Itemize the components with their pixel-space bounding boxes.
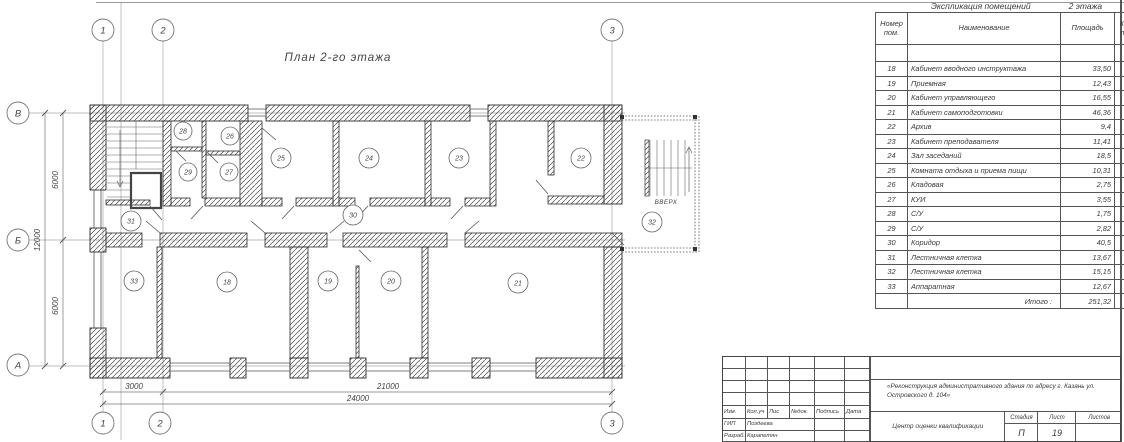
svg-text:29: 29	[183, 170, 192, 177]
room-number: 33	[876, 279, 908, 294]
dim-left-12000: 12000	[33, 228, 42, 251]
room-name: КУИ	[908, 192, 1061, 207]
room-number: 31	[876, 250, 908, 265]
room-cat	[1115, 236, 1124, 251]
table-header-row: Номер пом. Наименование Площадь Кат. пом…	[876, 13, 1124, 45]
room-cat	[1115, 250, 1124, 265]
room-area: 15,15	[1061, 265, 1115, 280]
svg-text:1: 1	[100, 26, 105, 37]
room-number: 29	[876, 221, 908, 236]
table-title-text: Экспликация помещений	[931, 1, 1031, 11]
table-row: 26 Кладовая 2,75	[876, 178, 1124, 193]
explication-table: Экспликация помещений 2 этажа Номер пом.…	[875, 0, 1121, 309]
svg-text:18: 18	[223, 280, 231, 287]
room-number: 24	[876, 149, 908, 164]
tb-empty-strip	[871, 357, 1122, 380]
tb-col-lis: Лис	[768, 406, 790, 419]
room-area: 2,75	[1061, 178, 1115, 193]
room-area: 12,67	[1061, 279, 1115, 294]
table-row: 19 Приемная 12,43	[876, 76, 1124, 91]
total-value: 251,32	[1061, 294, 1115, 309]
title-block-grid: Изм. Кол.уч Лис №док. Подпись Дата ГИП П…	[723, 357, 870, 441]
svg-text:2: 2	[156, 419, 163, 430]
room-area: 10,31	[1061, 163, 1115, 178]
tb-col-izm: Изм.	[723, 406, 746, 419]
table-row: 25 Комната отдыха и приема пищи 10,31	[876, 163, 1124, 178]
table-row: 23 Кабинет преподавателя 11,41	[876, 134, 1124, 149]
room-cat	[1115, 279, 1124, 294]
svg-text:33: 33	[130, 279, 138, 286]
tb-name-razrab: Карапетян	[746, 431, 815, 442]
room-cat	[1115, 76, 1124, 91]
room-area: 16,55	[1061, 91, 1115, 106]
room-number: 30	[876, 236, 908, 251]
room-area: 2,82	[1061, 221, 1115, 236]
room-cat	[1115, 265, 1124, 280]
drawing-sheet: 6000 6000 12000 3000 21000 24000 План 2-…	[0, 0, 1124, 442]
room-cat	[1115, 62, 1124, 77]
sheet-value: 19	[1038, 424, 1076, 441]
tb-gip-sign	[815, 419, 845, 431]
stair-up-arrow	[686, 147, 692, 192]
tb-razrab-date	[845, 431, 870, 442]
room-name: Кабинет преподавателя	[908, 134, 1061, 149]
room-area: 12,43	[1061, 76, 1115, 91]
stair-direction-label: ВВЕРХ	[655, 199, 678, 206]
staircase-right: ВВЕРХ	[620, 115, 699, 252]
floor-plan: 6000 6000 12000 3000 21000 24000 План 2-…	[0, 0, 760, 442]
dim-left-6000-bottom: 6000	[51, 297, 60, 315]
room-name: Лестничная клетка	[908, 250, 1061, 265]
col-header-number: Номер пом.	[876, 13, 908, 45]
tb-col-data: Дата	[845, 406, 870, 419]
room-area: 40,5	[1061, 236, 1115, 251]
svg-text:20: 20	[386, 279, 395, 286]
svg-text:2: 2	[159, 26, 166, 37]
svg-text:32: 32	[648, 220, 656, 227]
sheets-label: Листов	[1076, 412, 1122, 423]
room-number: 23	[876, 134, 908, 149]
room-name: Лестничная клетка	[908, 265, 1061, 280]
table-row: 22 Архив 9,4	[876, 120, 1124, 135]
room-name: Комната отдыха и приема пищи	[908, 163, 1061, 178]
room-number: 22	[876, 120, 908, 135]
svg-text:25: 25	[276, 156, 285, 163]
room-cat	[1115, 178, 1124, 193]
corner-markers	[620, 115, 697, 251]
svg-text:26: 26	[225, 134, 234, 141]
svg-text:3: 3	[609, 26, 615, 37]
svg-text:28: 28	[178, 129, 187, 136]
room-number: 26	[876, 178, 908, 193]
room-area: 33,50	[1061, 62, 1115, 77]
col-header-area: Площадь	[1061, 13, 1115, 45]
room-name: Кабинет управляющего	[908, 91, 1061, 106]
dim-bottom-3000: 3000	[125, 382, 143, 391]
tb-role-razrab: Разраб.	[723, 431, 746, 442]
table-row: 18 Кабинет вводного инструктажа 33,50	[876, 62, 1124, 77]
room-name: Аппаратная	[908, 279, 1061, 294]
table-title-suffix: 2 этажа	[1069, 1, 1103, 11]
room-number: 27	[876, 192, 908, 207]
svg-text:3: 3	[609, 419, 615, 430]
table-row: 29 С/У 2,82	[876, 221, 1124, 236]
col-header-name: Наименование	[908, 13, 1061, 45]
room-cat	[1115, 91, 1124, 106]
svg-text:1: 1	[100, 419, 105, 430]
room-number: 28	[876, 207, 908, 222]
svg-text:В: В	[15, 109, 22, 120]
room-name: Кабинет самоподготовки	[908, 105, 1061, 120]
tb-razrab-sign	[815, 431, 845, 442]
sheet-label: Лист	[1038, 412, 1076, 423]
room-cat	[1115, 149, 1124, 164]
staircase-left	[107, 121, 163, 208]
table-row: 21 Кабинет самоподготовки 46,36	[876, 105, 1124, 120]
tb-name-gip: Поздеева	[746, 419, 815, 431]
room-area: 1,75	[1061, 207, 1115, 222]
svg-text:31: 31	[127, 219, 135, 226]
table-row: 30 Коридор 40,5	[876, 236, 1124, 251]
svg-text:24: 24	[364, 156, 373, 163]
table-row: 33 Аппаратная 12,67	[876, 279, 1124, 294]
room-name: Коридор	[908, 236, 1061, 251]
table-row: 24 Зал заседаний 18,5	[876, 149, 1124, 164]
table-row: 27 КУИ 3,55	[876, 192, 1124, 207]
svg-text:21: 21	[513, 281, 522, 288]
document-title: Центр оценки квалификации	[871, 412, 1005, 441]
room-area: 11,41	[1061, 134, 1115, 149]
tb-col-podpis: Подпись	[815, 406, 845, 419]
room-name: Приемная	[908, 76, 1061, 91]
stage-value: П	[1005, 424, 1038, 441]
stair-arrow	[117, 130, 123, 187]
room-cat	[1115, 163, 1124, 178]
sheets-value	[1076, 424, 1122, 441]
room-number: 20	[876, 91, 908, 106]
svg-text:19: 19	[324, 279, 332, 286]
dim-left-6000-top: 6000	[51, 171, 60, 189]
table-spacer-row	[876, 45, 1124, 62]
room-number: 21	[876, 105, 908, 120]
col-header-cat: Кат. пом.	[1115, 13, 1124, 45]
room-name: Кабинет вводного инструктажа	[908, 62, 1061, 77]
svg-text:Б: Б	[15, 236, 21, 247]
room-number: 32	[876, 265, 908, 280]
title-block: Изм. Кол.уч Лис №док. Подпись Дата ГИП П…	[722, 356, 1121, 442]
room-name: Зал заседаний	[908, 149, 1061, 164]
svg-text:22: 22	[576, 156, 585, 163]
table-row: 31 Лестничная клетка 13,67	[876, 250, 1124, 265]
dim-bottom-21000: 21000	[376, 382, 400, 391]
table-title: Экспликация помещений 2 этажа	[875, 0, 1121, 11]
svg-text:23: 23	[454, 156, 463, 163]
table-row: 32 Лестничная клетка 15,15	[876, 265, 1124, 280]
room-cat	[1115, 105, 1124, 120]
table-row: 20 Кабинет управляющего 16,55	[876, 91, 1124, 106]
stage-label: Стадия	[1005, 412, 1038, 423]
total-label: Итого :	[908, 294, 1061, 309]
room-cat	[1115, 192, 1124, 207]
table-row: 28 С/У 1,75	[876, 207, 1124, 222]
room-area: 46,36	[1061, 105, 1115, 120]
room-name: С/У	[908, 221, 1061, 236]
room-area: 18,5	[1061, 149, 1115, 164]
dim-bottom-24000: 24000	[346, 394, 370, 403]
room-cat	[1115, 207, 1124, 222]
svg-text:30: 30	[349, 213, 357, 220]
tb-role-gip: ГИП	[723, 419, 746, 431]
room-area: 9,4	[1061, 120, 1115, 135]
room-name: С/У	[908, 207, 1061, 222]
room-number: 25	[876, 163, 908, 178]
tb-col-koluch: Кол.уч	[746, 406, 768, 419]
room-number: 19	[876, 76, 908, 91]
room-area: 3,55	[1061, 192, 1115, 207]
table-total-row: Итого : 251,32	[876, 294, 1124, 309]
project-title: «Реконструкция административного здания …	[871, 380, 1122, 412]
svg-text:А: А	[14, 361, 21, 372]
room-cat	[1115, 120, 1124, 135]
plan-title: План 2-го этажа	[285, 52, 392, 64]
tb-col-ndok: №док.	[790, 406, 815, 419]
room-name: Архив	[908, 120, 1061, 135]
room-number: 18	[876, 62, 908, 77]
room-name: Кладовая	[908, 178, 1061, 193]
room-area: 13,67	[1061, 250, 1115, 265]
tb-gip-date	[845, 419, 870, 431]
room-cat	[1115, 134, 1124, 149]
svg-text:27: 27	[224, 170, 234, 177]
room-cat	[1115, 221, 1124, 236]
